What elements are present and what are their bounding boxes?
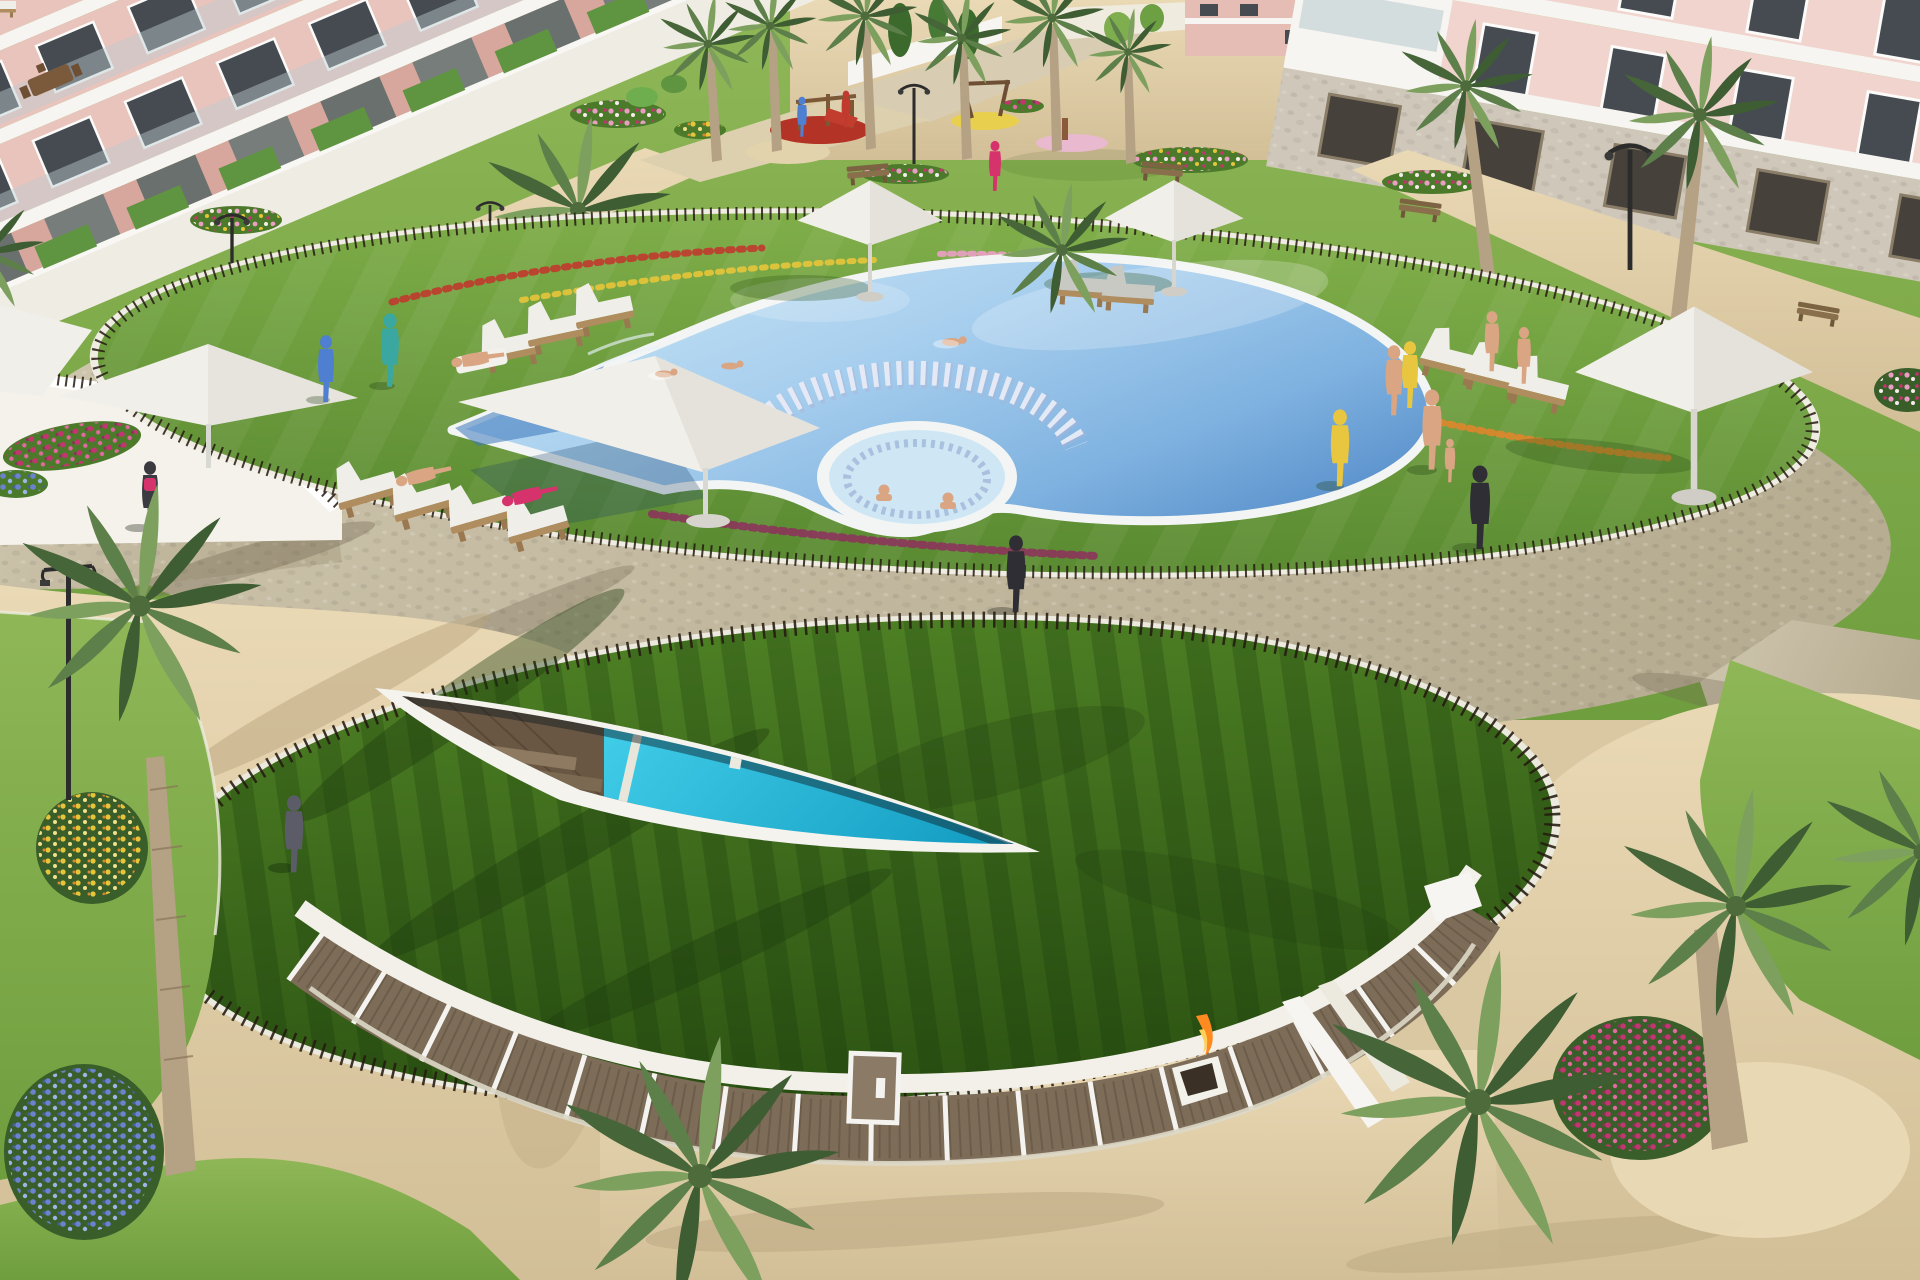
flower-bed [1382,170,1482,194]
spring-toy [1062,118,1068,140]
flower-bed [190,206,282,234]
jacuzzi [817,421,1017,533]
clubhouse-door [849,1053,899,1123]
flower-bed-yellow [36,792,148,904]
rendered-scene: Aerial render of a resort-style resident… [0,0,1920,1280]
distant-window [1200,4,1218,16]
distant-window [1240,4,1258,16]
flower-bed-blue [4,1064,164,1240]
resort-render: Aerial render of a resort-style resident… [0,0,1920,1280]
umbrella-shadow [730,275,870,301]
jogger-top [144,478,156,491]
flower-bed [1000,99,1044,113]
play-mat-pink [1036,134,1108,152]
